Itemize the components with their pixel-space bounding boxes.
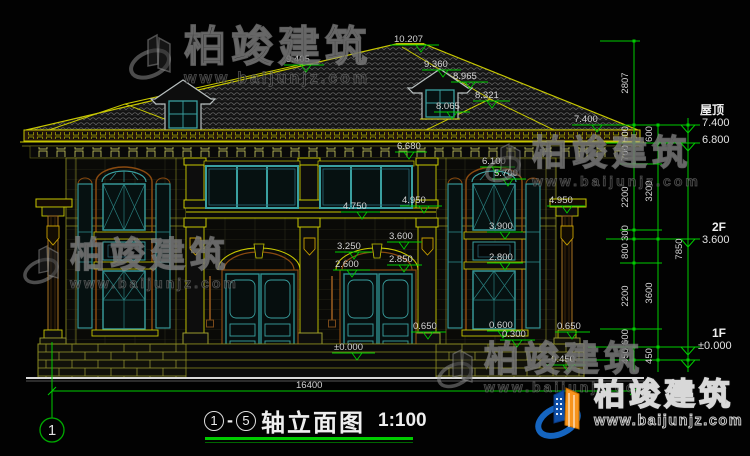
svg-text:800: 800 [620,243,631,259]
svg-text:1: 1 [48,422,56,439]
svg-text:8.321: 8.321 [475,90,499,101]
svg-text:2.800: 2.800 [489,252,513,263]
svg-text:9.360: 9.360 [424,59,448,70]
svg-text:2.600: 2.600 [335,259,359,270]
svg-text:3600: 3600 [644,282,655,303]
svg-text:700: 700 [620,145,631,161]
svg-text:2200: 2200 [620,186,631,207]
brand-name: 柏竣建筑 [594,379,743,412]
svg-text:0.300: 0.300 [502,329,526,340]
svg-text:450: 450 [644,348,655,364]
svg-text:3.600: 3.600 [389,231,413,242]
title-underline-thick [205,437,413,440]
title-scale: 1:100 [378,410,427,432]
svg-text:0.650: 0.650 [413,321,437,332]
svg-text:16400: 16400 [296,380,322,391]
svg-text:3.900: 3.900 [489,221,513,232]
dimension-ticks [633,40,690,362]
chain-b-values: 600 3200 3600 450 [644,126,655,364]
svg-text:7.400: 7.400 [702,117,730,129]
svg-text:600: 600 [620,126,631,142]
svg-text:9.405: 9.405 [286,54,310,65]
drawing-title: 1 - 5 轴立面图 1:100 [204,403,427,438]
cad-elevation-drawing: 2807 600 700 2200 300 800 2200 600 450 6… [0,0,750,456]
main-roof [26,44,638,131]
title-axis-start: 1 [204,411,224,431]
wing-arched-window [78,167,170,336]
floor-labels: 屋顶 7.400 6.800 2F 3.600 1F ±0.000 [698,103,732,352]
svg-text:4.750: 4.750 [343,201,367,212]
svg-text:5.700: 5.700 [494,168,518,179]
svg-text:6.800: 6.800 [702,134,730,146]
title-axis-end: 5 [236,411,256,431]
title-label: 轴立面图 [261,403,365,438]
svg-text:1F: 1F [712,326,726,340]
svg-text:8.965: 8.965 [453,71,477,82]
svg-text:屋顶: 屋顶 [700,103,724,117]
svg-text:6.680: 6.680 [397,141,421,152]
svg-text:2200: 2200 [620,285,631,306]
svg-text:±0.000: ±0.000 [334,342,363,353]
title-underline-thin [205,442,413,443]
brand-logo-icon [534,379,590,449]
svg-text:600: 600 [620,329,631,345]
svg-text:3.600: 3.600 [702,234,730,246]
svg-text:3.250: 3.250 [337,241,361,252]
svg-text:4.950: 4.950 [402,195,426,206]
second-floor-window-group [204,161,300,208]
dimension-chains [580,41,700,372]
chain-a-values: 2807 600 700 2200 300 800 2200 600 450 [620,72,631,364]
svg-text:8.065: 8.065 [436,101,460,112]
svg-text:2F: 2F [712,220,726,234]
eaves-cornice [20,130,644,158]
svg-text:3200: 3200 [644,180,655,201]
svg-text:2807: 2807 [620,72,631,93]
svg-text:600: 600 [644,126,655,142]
svg-text:±0.000: ±0.000 [698,340,732,352]
svg-text:4.950: 4.950 [549,195,573,206]
svg-text:0.650: 0.650 [557,321,581,332]
svg-text:6.100: 6.100 [482,156,506,167]
stone-base [38,344,584,378]
svg-text:7.400: 7.400 [574,114,598,125]
svg-text:2.850: 2.850 [389,254,413,265]
svg-text:300: 300 [620,225,631,241]
brand-logo-block: 柏竣建筑 www.baijunjz.com [534,379,743,449]
svg-text:-0.450: -0.450 [548,354,575,365]
svg-text:10.207: 10.207 [394,34,423,45]
svg-text:450: 450 [620,348,631,364]
title-dash: - [227,410,233,431]
brand-url: www.baijunjz.com [594,413,743,429]
